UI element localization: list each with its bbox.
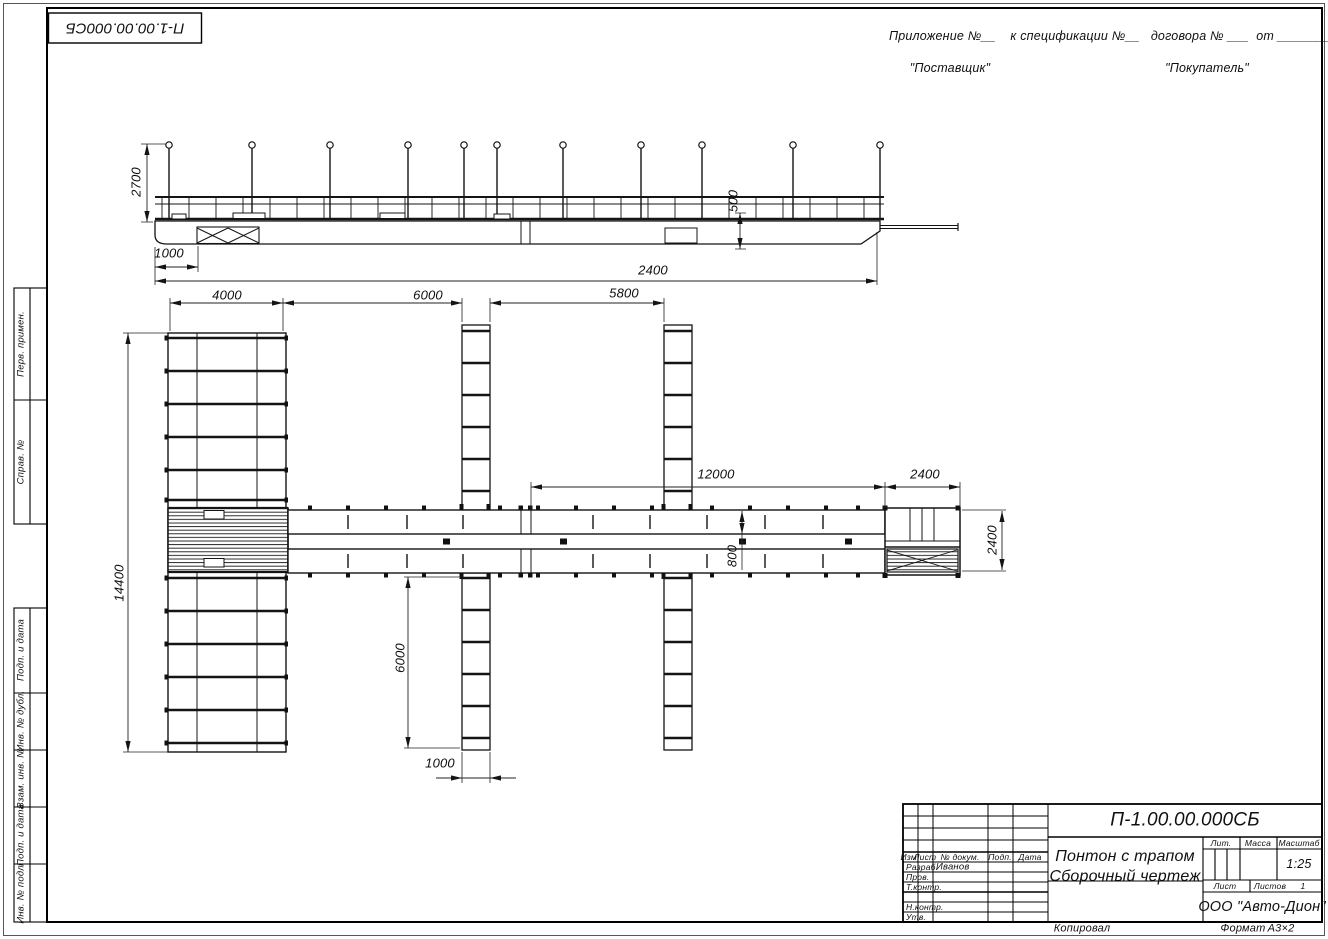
row-razrab: Разраб.	[906, 863, 938, 872]
masshtab-label: Масштаб	[1278, 839, 1319, 848]
row-tkontr: Т.контр.	[906, 883, 942, 892]
titleblock-title-line2: Сборочный чертеж	[1049, 869, 1200, 885]
row-nkontr: Н.контр.	[906, 903, 944, 912]
dim-overall: 2400	[638, 264, 668, 277]
copied-label: Копировал	[1054, 924, 1111, 935]
massa-label: Масса	[1245, 839, 1271, 848]
col-doc: № докум.	[940, 853, 979, 862]
col-list: Лист	[914, 853, 937, 862]
stamp-inv-podl: Инв. № подл.	[16, 862, 26, 923]
dim-bay-spacing1: 6000	[413, 289, 443, 302]
dim-walkway-length: 12000	[697, 468, 734, 481]
dim-pier-length: 14400	[113, 564, 126, 601]
stamp-vzam-inv: Взам. инв. №	[16, 747, 26, 808]
plan-view	[165, 325, 961, 752]
stamp-perv-primen: Перв. примен.	[16, 311, 26, 377]
titleblock-title-line1: Понтон с трапом	[1055, 849, 1194, 865]
scale-value: 1:25	[1286, 858, 1311, 871]
format-label: Формат	[1221, 924, 1266, 935]
listov-label: Листов	[1254, 882, 1286, 891]
row-utv: Утв.	[906, 913, 926, 922]
company-name: ООО "Авто-Дион"	[1198, 900, 1325, 915]
lit-label: Лит.	[1211, 839, 1232, 848]
stamp-sprav-no: Справ. №	[16, 440, 26, 485]
drawing-sheet: П-1.00.00.000СБ Приложение №__ к специфи…	[0, 0, 1328, 939]
dim-finger-length: 6000	[394, 643, 407, 673]
stamp-podp-data-2: Подп. и дата	[16, 804, 26, 866]
razrab-name: Иванов	[936, 862, 970, 872]
dim-bay-spacing2: 5800	[609, 287, 639, 300]
dim-platform-length: 2400	[910, 468, 940, 481]
row-prov: Пров.	[906, 873, 929, 882]
dim-mast-height: 2700	[130, 167, 143, 197]
dim-freeboard: 500	[727, 190, 740, 212]
corner-doc-number: П-1.00.00.000СБ	[66, 21, 185, 36]
col-data: Дата	[1018, 853, 1041, 862]
elevation-view	[155, 142, 958, 244]
col-podp: Подп.	[988, 853, 1012, 862]
stamp-inv-dubl: Инв. № дубл.	[16, 691, 26, 752]
format-value: А3×2	[1268, 924, 1295, 935]
annex-line: Приложение №__ к спецификации №__ догово…	[889, 30, 1328, 43]
dim-pier-width: 4000	[212, 289, 242, 302]
dim-gangway-offset: 1000	[154, 247, 184, 260]
dim-finger-width: 1000	[425, 757, 455, 770]
drawing-geometry	[0, 0, 1328, 939]
dim-lane-width: 800	[726, 545, 739, 567]
titleblock-doc-number: П-1.00.00.000СБ	[1110, 811, 1260, 830]
dim-platform-width: 2400	[986, 525, 999, 555]
buyer-label: "Покупатель"	[1165, 62, 1249, 75]
listov-value: 1	[1301, 882, 1306, 891]
stamp-podp-data-1: Подп. и дата	[16, 619, 26, 681]
list-label: Лист	[1214, 882, 1237, 891]
supplier-label: "Поставщик"	[910, 62, 991, 75]
